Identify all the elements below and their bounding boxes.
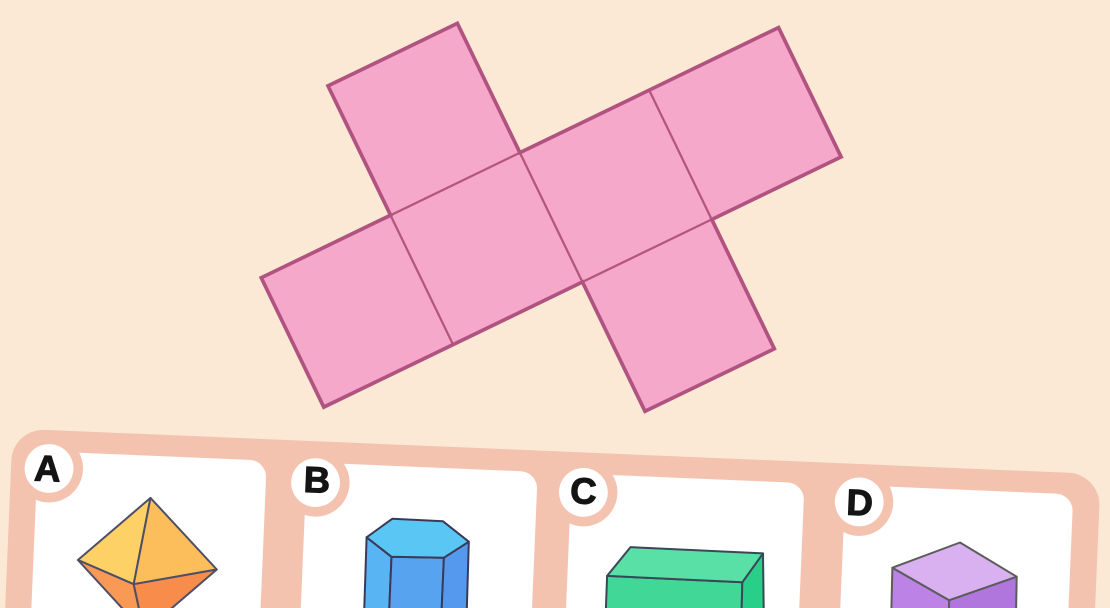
svg-text:A: A	[33, 448, 61, 490]
svg-text:D: D	[846, 482, 874, 524]
svg-text:B: B	[303, 459, 331, 501]
svg-text:C: C	[569, 470, 597, 512]
